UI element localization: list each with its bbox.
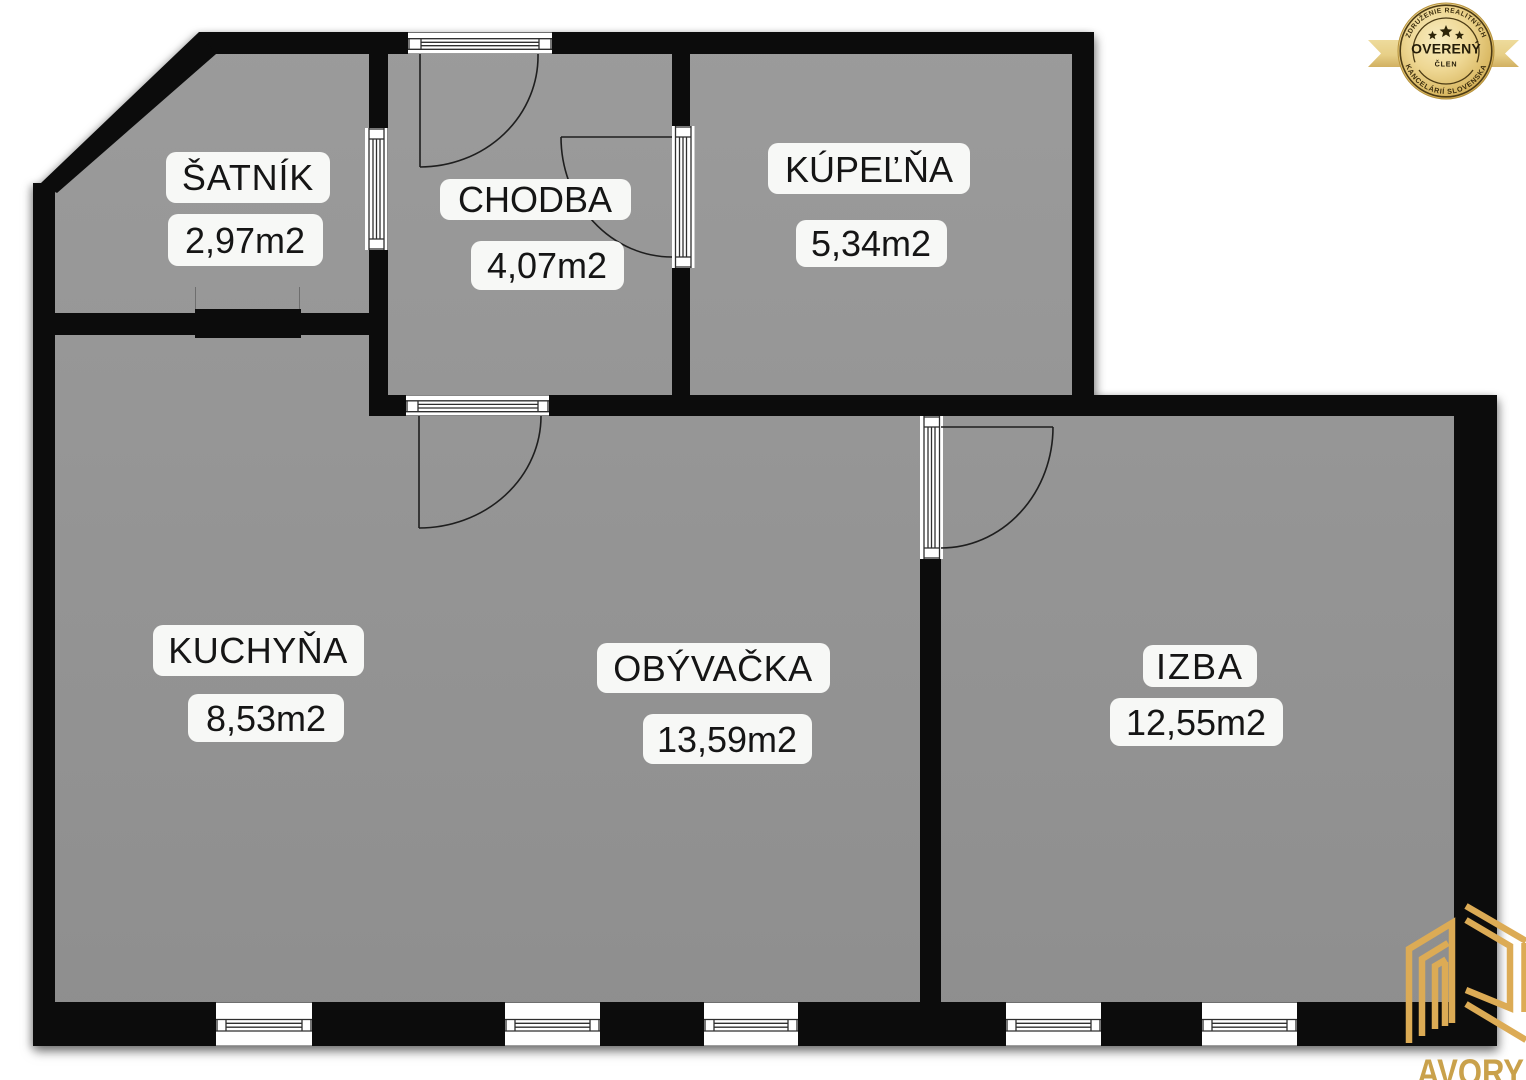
- svg-text:ŠATNÍK: ŠATNÍK: [182, 157, 314, 198]
- svg-text:4,07m2: 4,07m2: [487, 245, 607, 286]
- svg-text:2,97m2: 2,97m2: [185, 220, 305, 261]
- svg-text:OVERENÝ: OVERENÝ: [1411, 40, 1481, 57]
- svg-text:ČLEN: ČLEN: [1435, 60, 1458, 69]
- svg-text:CHODBA: CHODBA: [458, 179, 612, 220]
- svg-text:12,55m2: 12,55m2: [1126, 702, 1266, 743]
- svg-text:13,59m2: 13,59m2: [657, 719, 797, 760]
- svg-text:KÚPEĽŇA: KÚPEĽŇA: [785, 149, 953, 190]
- svg-text:OBÝVAČKA: OBÝVAČKA: [613, 648, 812, 689]
- svg-text:AVORY: AVORY: [1417, 1052, 1524, 1080]
- svg-text:8,53m2: 8,53m2: [206, 698, 326, 739]
- svg-text:KUCHYŇA: KUCHYŇA: [168, 630, 348, 671]
- svg-text:IZBA: IZBA: [1156, 646, 1244, 687]
- svg-text:5,34m2: 5,34m2: [811, 223, 931, 264]
